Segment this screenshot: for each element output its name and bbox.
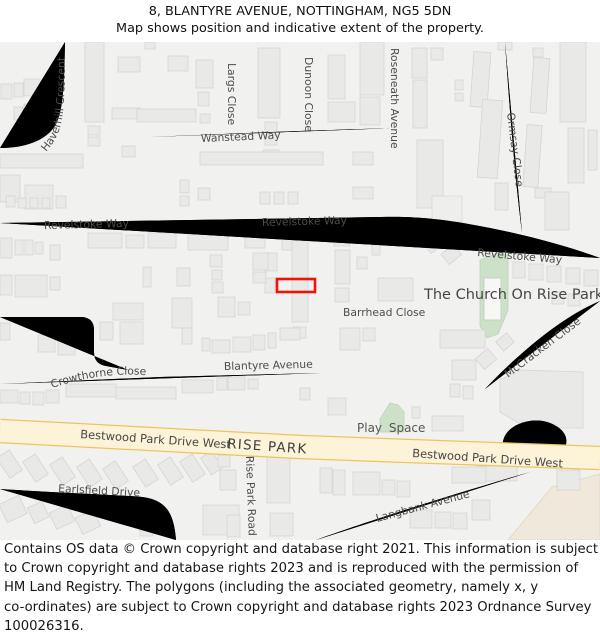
report-header: 8, BLANTYRE AVENUE, NOTTINGHAM, NG5 5DN … — [0, 0, 600, 42]
copyright-line: 100026316. — [0, 617, 600, 636]
poi-label-play-space: Play Space — [357, 421, 425, 435]
street-label-revelstoke-west: Revelstoke Way — [44, 217, 130, 232]
street-label-barrhead: Barrhead Close — [343, 306, 426, 319]
copyright-line: HM Land Registry. The polygons (includin… — [0, 578, 600, 597]
copyright-line: Contains OS data © Crown copyright and d… — [0, 540, 600, 559]
page-title: 8, BLANTYRE AVENUE, NOTTINGHAM, NG5 5DN — [0, 0, 600, 20]
copyright-line: to Crown copyright and database rights 2… — [0, 559, 600, 578]
street-label-dunoon: Dunoon Close — [302, 57, 315, 132]
poi-label-church: The Church On Rise Park — [423, 287, 600, 303]
page-subtitle: Map shows position and indicative extent… — [0, 20, 600, 37]
map-canvas: Haverhill Crescent Largs Close Dunoon Cl… — [0, 42, 600, 540]
street-label-largs: Largs Close — [225, 63, 238, 126]
street-label-roseneath: Roseneath Avenue — [388, 48, 401, 149]
copyright-line: co-ordinates) are subject to Crown copyr… — [0, 598, 600, 617]
copyright-footer: Contains OS data © Crown copyright and d… — [0, 540, 600, 625]
street-label-blantyre: Blantyre Avenue — [224, 358, 314, 373]
retail-building — [500, 370, 583, 428]
street-label-revelstoke-mid: Revelstoke Way — [262, 214, 348, 229]
